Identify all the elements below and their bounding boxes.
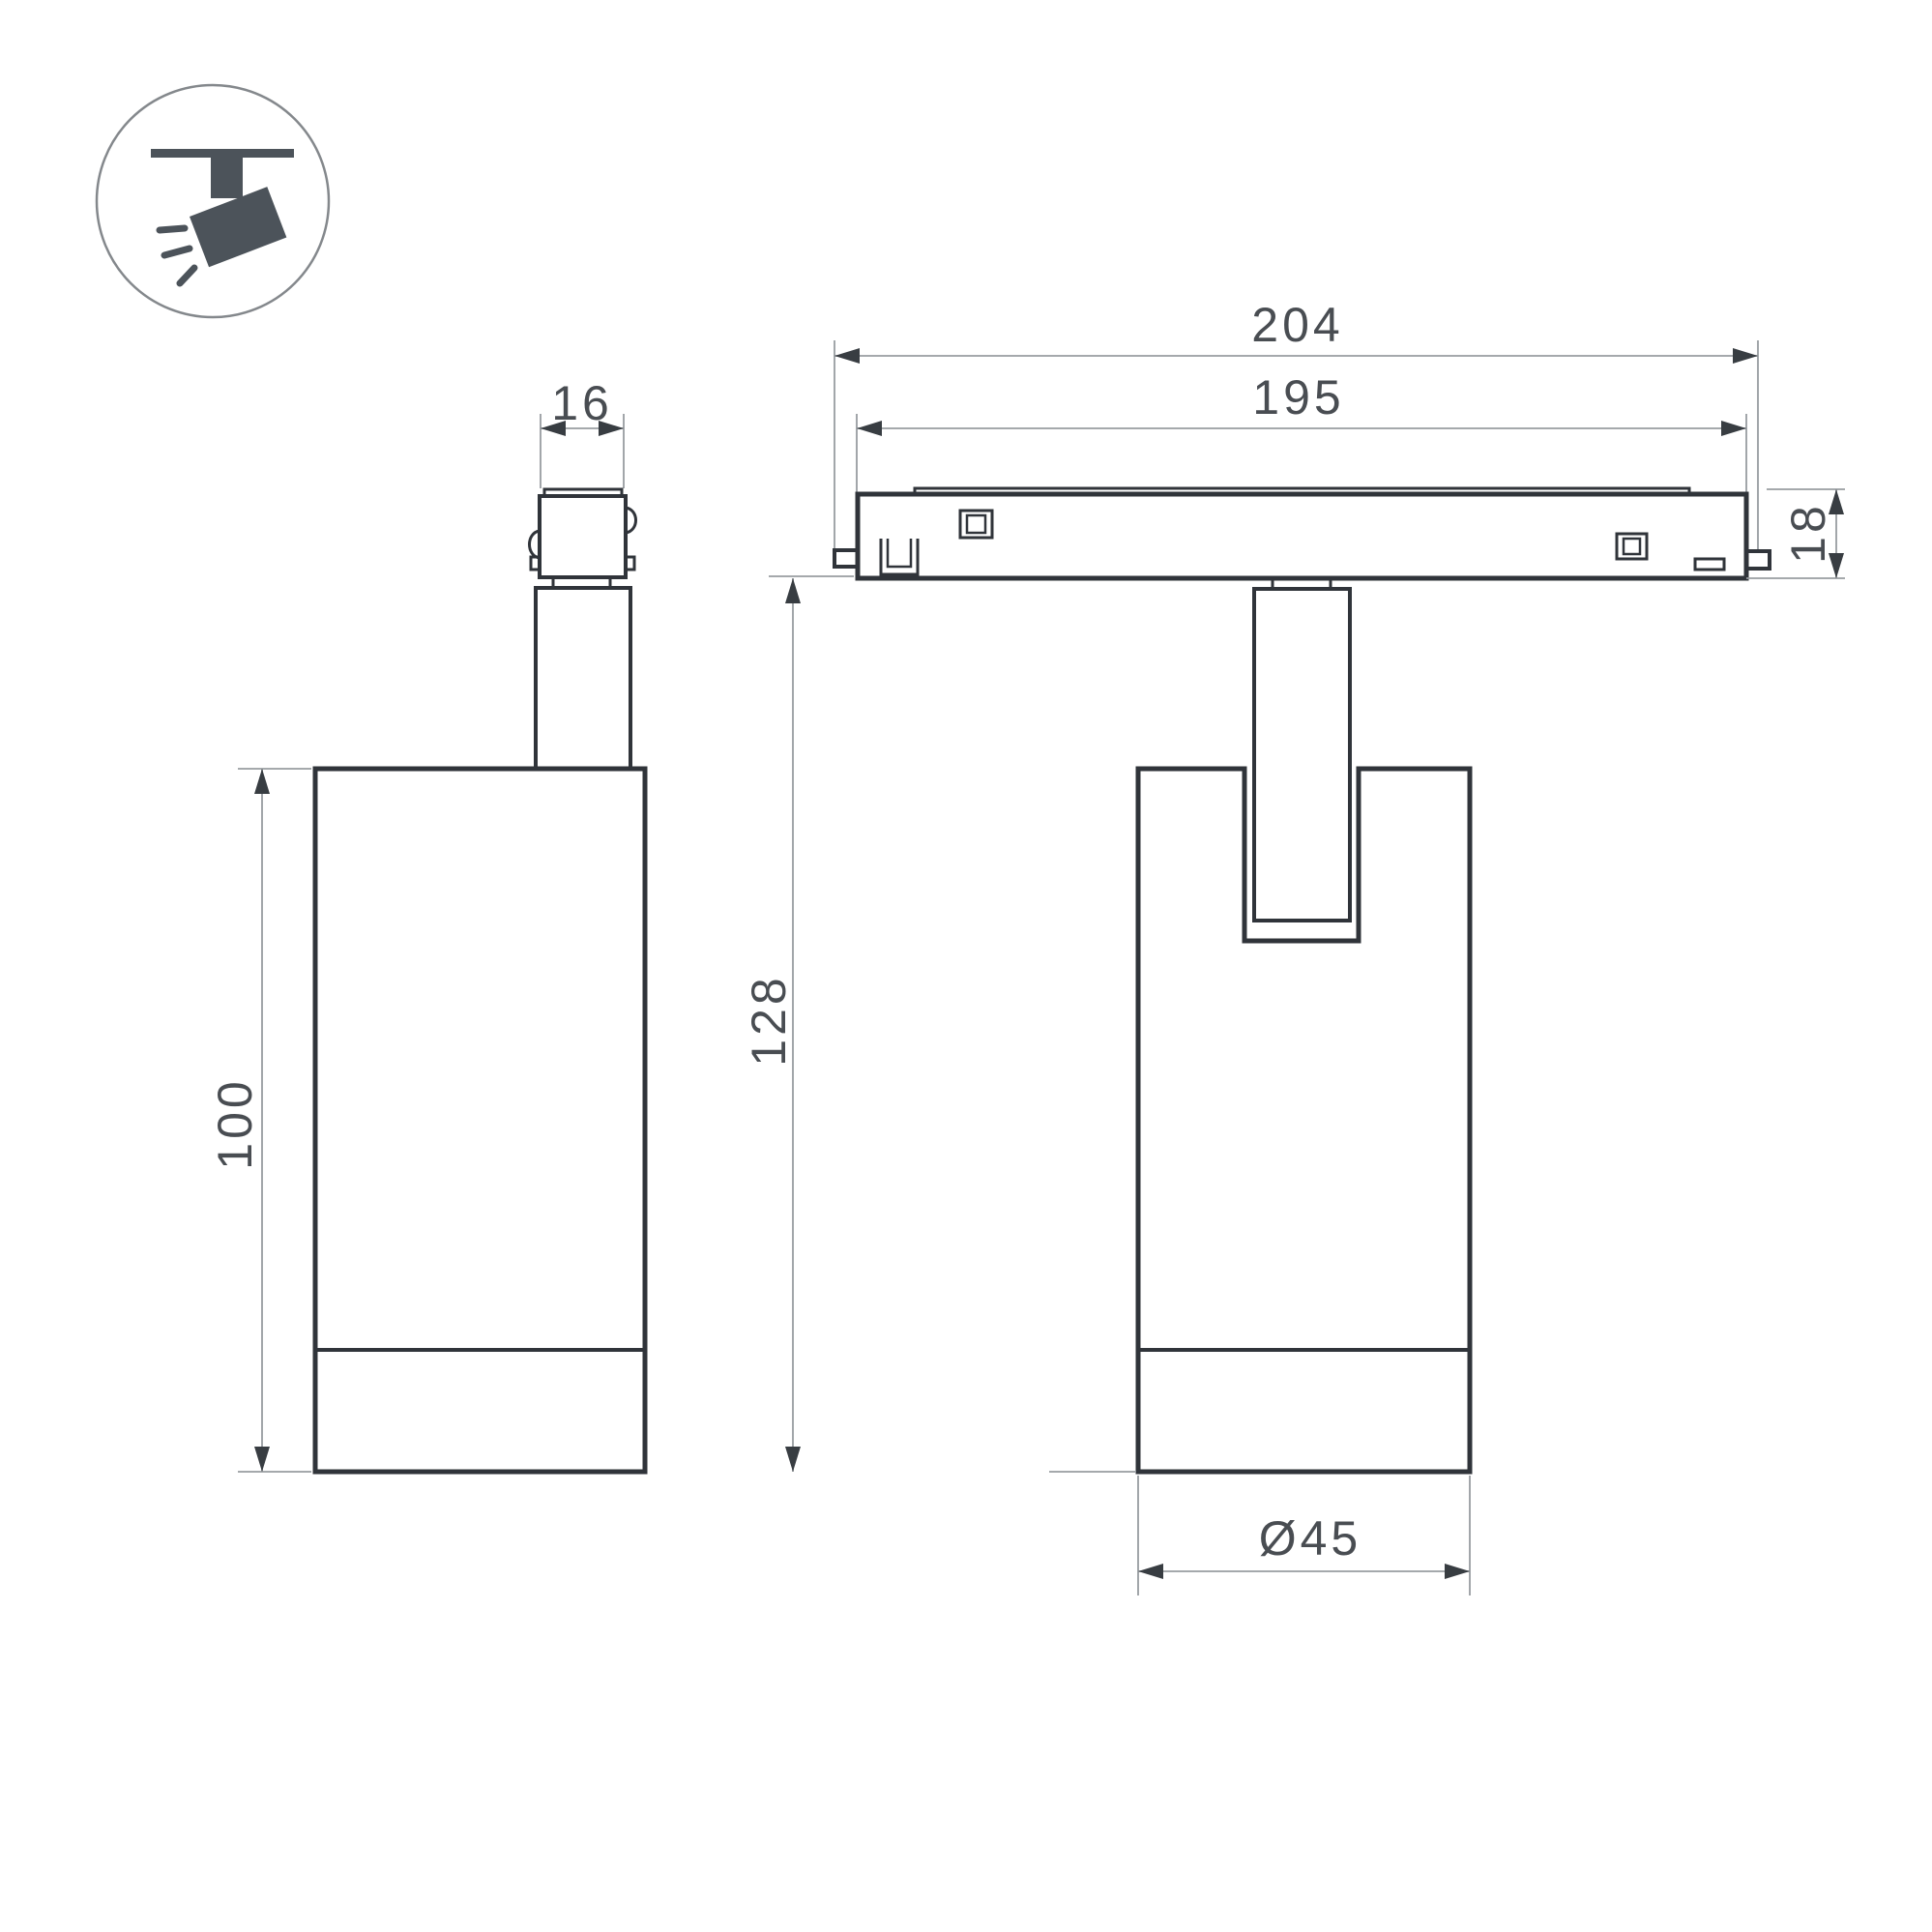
dim-label-overall-width: 204 xyxy=(1251,298,1343,352)
mount-stem xyxy=(211,155,243,198)
arrowhead xyxy=(785,1447,801,1472)
installation-type-badge xyxy=(97,85,329,317)
dim-overall-height: 128 xyxy=(742,576,1136,1472)
arrowhead xyxy=(834,348,860,364)
arrowhead xyxy=(254,769,270,794)
dim-label-body-height: 100 xyxy=(208,1077,262,1169)
dim-label-rail-height: 18 xyxy=(1781,502,1835,564)
dim-label-adapter-width: 16 xyxy=(551,376,613,430)
dim-rail-height: 18 xyxy=(1746,489,1845,578)
dim-rail-width: 195 xyxy=(857,370,1746,494)
technical-drawing-canvas: 16 100 204 xyxy=(0,0,1932,1932)
arrowhead xyxy=(1733,348,1758,364)
dim-body-height: 100 xyxy=(208,769,311,1472)
front-view: 204 195 xyxy=(742,298,1845,1595)
dim-label-overall-height: 128 xyxy=(742,974,796,1066)
lamp-body xyxy=(315,769,645,1472)
rail-end-tab-right xyxy=(1746,551,1770,569)
adapter-tab-right xyxy=(626,557,634,570)
adapter-tab-left xyxy=(531,557,540,570)
arrowhead xyxy=(1445,1564,1470,1579)
dim-adapter-width: 16 xyxy=(541,376,624,488)
drawing-svg: 16 100 204 xyxy=(0,0,1932,1932)
dim-body-diameter: Ø45 xyxy=(1138,1476,1470,1595)
arrowhead xyxy=(1138,1564,1163,1579)
pivot-stem xyxy=(536,588,630,769)
badge-circle xyxy=(97,85,329,317)
arrowhead xyxy=(1721,421,1746,436)
arrowhead xyxy=(857,421,882,436)
rail-end-tab-left xyxy=(834,550,858,567)
track-adapter xyxy=(540,496,626,577)
dim-label-body-diameter: Ø45 xyxy=(1259,1511,1362,1566)
side-view: 16 100 xyxy=(208,376,645,1472)
arrowhead xyxy=(254,1447,270,1472)
pivot-stem xyxy=(1254,589,1350,921)
dim-label-rail-width: 195 xyxy=(1252,370,1344,424)
arrowhead xyxy=(785,578,801,603)
